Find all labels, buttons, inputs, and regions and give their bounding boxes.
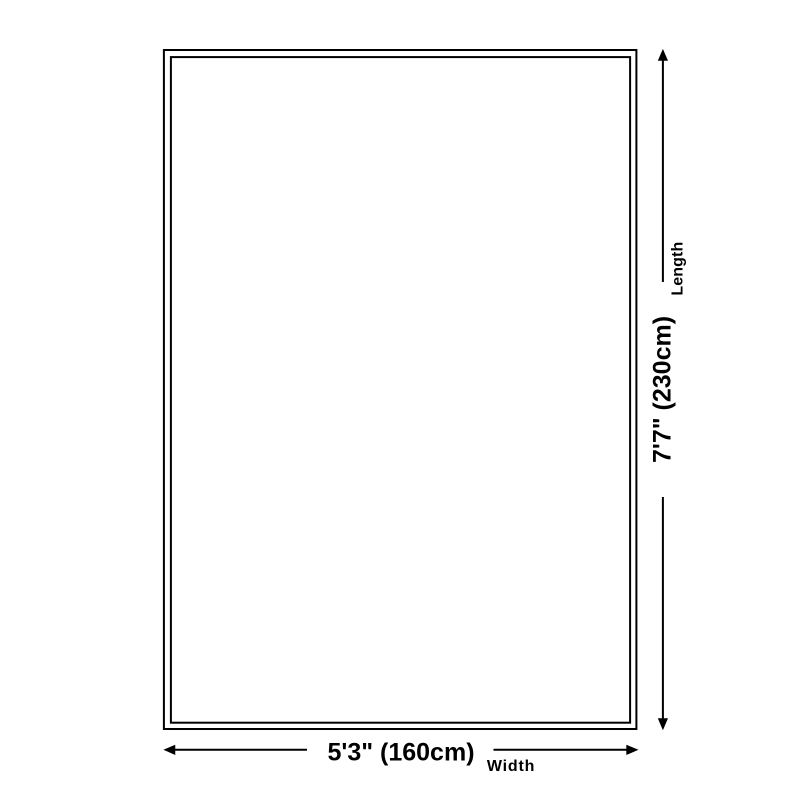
svg-text:Length: Length [669, 242, 686, 296]
svg-text:5'3" (160cm): 5'3" (160cm) [327, 739, 474, 767]
svg-text:Width: Width [487, 758, 535, 775]
svg-text:7'7" (230cm): 7'7" (230cm) [648, 316, 676, 463]
